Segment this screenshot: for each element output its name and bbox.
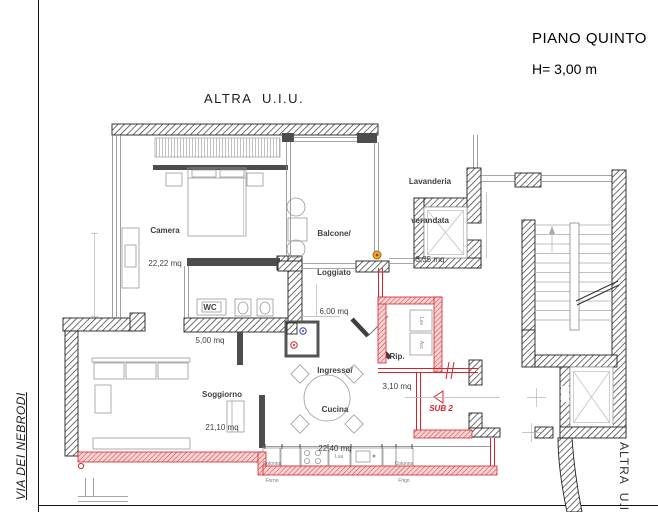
room-name: WC bbox=[196, 302, 225, 313]
rip-washer-label: Lav bbox=[418, 317, 424, 325]
kitchen-counter bbox=[263, 444, 490, 466]
room-area: 22,22 mq bbox=[148, 258, 181, 269]
room-label-lavanderia: Lavanderia verandata 3,35 mq bbox=[409, 149, 451, 279]
nightstand bbox=[247, 173, 263, 186]
red-ring-marker bbox=[78, 463, 83, 468]
room-name: Rip. bbox=[383, 352, 412, 362]
room-name: Camera bbox=[148, 225, 181, 236]
room-label-camera: Camera 22,22 mq bbox=[148, 203, 181, 280]
room-label-balcone: Balcone/ Loggiato 6,00 mq bbox=[317, 201, 351, 331]
utility-shaft bbox=[286, 322, 318, 356]
kitchen-oven-label: Colonna Forno bbox=[263, 451, 282, 490]
room-label-ingresso: Ingresso/ Cucina 22,40 mq bbox=[317, 338, 353, 468]
room-area: 21,10 mq bbox=[202, 422, 242, 433]
floor-height-label: H= 3,00 m bbox=[532, 61, 597, 77]
kitchen-dishwasher-label: Lva bbox=[335, 455, 343, 461]
page-title: PIANO QUINTO bbox=[532, 30, 647, 47]
curved-wall bbox=[558, 438, 582, 512]
exterior-lower-left bbox=[78, 478, 128, 502]
elevator-2 bbox=[522, 330, 626, 512]
neighbor-unit-label-top: ALTRA U.I.U. bbox=[204, 91, 304, 106]
room-name: Soggiorno bbox=[202, 389, 242, 400]
room-name: Cucina bbox=[317, 403, 353, 416]
kitchen-fridge-label: Colonna Frigo bbox=[395, 451, 414, 490]
stair-core-windows bbox=[481, 173, 612, 187]
neighbor-unit-label-right: ALTRA U.I.U. bbox=[617, 442, 631, 512]
room-label-wc: WC 5,00 mq bbox=[196, 280, 225, 357]
sub-unit-label: SUB 2 bbox=[429, 404, 453, 413]
room-label-rip: Rip. 3,10 mq bbox=[383, 332, 412, 402]
room-name: Lavanderia bbox=[409, 175, 451, 188]
room-label-soggiorno: Soggiorno 21,10 mq bbox=[202, 367, 242, 444]
nightstand bbox=[166, 173, 182, 186]
rip-dryer-label: Asc bbox=[418, 341, 424, 349]
room-area: 3,10 mq bbox=[383, 382, 412, 392]
room-name: Balcone/ bbox=[317, 227, 351, 240]
floor-plan: .w{fill:url(#hb);stroke:#222;stroke-widt… bbox=[0, 0, 658, 512]
plant bbox=[287, 240, 305, 258]
sideboard bbox=[93, 438, 190, 449]
sub2-arrow bbox=[434, 391, 443, 403]
wardrobe bbox=[155, 138, 280, 157]
room-area: 5,00 mq bbox=[196, 335, 225, 346]
room-name: Ingresso/ bbox=[317, 364, 353, 377]
street-label: VIA DEI NEBRODI bbox=[14, 392, 28, 500]
room-area: 6,00 mq bbox=[317, 305, 351, 318]
room-name: verandata bbox=[409, 214, 451, 227]
room-area: 3,35 mq bbox=[409, 253, 451, 266]
plant bbox=[287, 198, 305, 216]
room-name: Loggiato bbox=[317, 266, 351, 279]
